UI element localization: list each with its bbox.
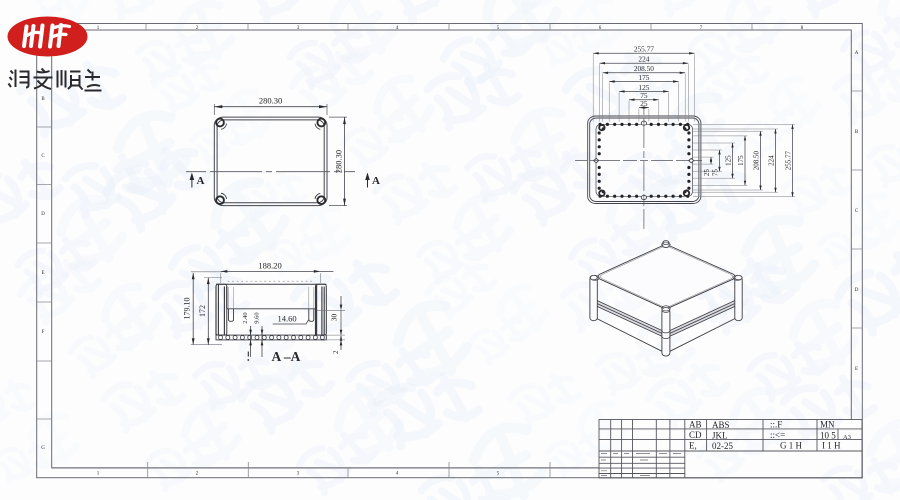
svg-text:30: 30	[330, 314, 339, 322]
svg-text:A: A	[855, 51, 859, 56]
svg-text:I 1 H: I 1 H	[822, 441, 841, 451]
svg-text:175: 175	[638, 73, 649, 82]
svg-text:D: D	[855, 288, 859, 293]
svg-text:G: G	[41, 446, 45, 451]
svg-text:188.20: 188.20	[258, 261, 281, 271]
svg-text:E: E	[41, 271, 44, 276]
svg-text:179.10: 179.10	[183, 298, 192, 320]
svg-text:14.60: 14.60	[277, 314, 296, 324]
svg-text:280.30: 280.30	[259, 96, 282, 106]
svg-text:E: E	[855, 367, 858, 372]
svg-text:208.50: 208.50	[752, 150, 760, 170]
svg-text:E,: E,	[689, 441, 697, 451]
svg-text:172: 172	[198, 305, 207, 317]
svg-text:G 1 H: G 1 H	[780, 441, 802, 451]
svg-text:224: 224	[767, 155, 775, 166]
svg-text:9.60: 9.60	[254, 312, 261, 323]
svg-text:75: 75	[711, 169, 719, 177]
svg-text:F: F	[42, 330, 45, 335]
svg-text:175: 175	[737, 155, 745, 166]
svg-text:224: 224	[638, 55, 649, 64]
svg-text:CD: CD	[689, 430, 702, 440]
svg-text:25: 25	[640, 99, 648, 108]
svg-text:2.40: 2.40	[242, 312, 249, 323]
svg-text:A –A: A –A	[272, 349, 301, 364]
svg-text:A3: A3	[843, 434, 851, 441]
svg-text:JKL: JKL	[712, 431, 728, 441]
svg-text:A: A	[372, 175, 380, 187]
svg-text:D: D	[41, 212, 45, 217]
svg-text:10 5: 10 5	[820, 431, 836, 441]
svg-text:280.30: 280.30	[334, 150, 344, 173]
svg-text:255.77: 255.77	[784, 150, 792, 170]
svg-text:208.50: 208.50	[634, 64, 654, 73]
svg-text:125: 125	[724, 155, 732, 166]
svg-text:MN: MN	[820, 420, 835, 430]
svg-text:A: A	[197, 175, 205, 187]
svg-text:255.77: 255.77	[634, 45, 654, 54]
svg-text:AB: AB	[689, 420, 702, 430]
svg-text:::.F: ::.F	[770, 420, 782, 430]
svg-text:02-25: 02-25	[712, 441, 733, 451]
svg-text:::<=: ::<=	[770, 430, 785, 440]
svg-text:ABS: ABS	[712, 420, 730, 430]
svg-text:25: 25	[703, 169, 711, 177]
svg-text:2: 2	[332, 350, 340, 354]
